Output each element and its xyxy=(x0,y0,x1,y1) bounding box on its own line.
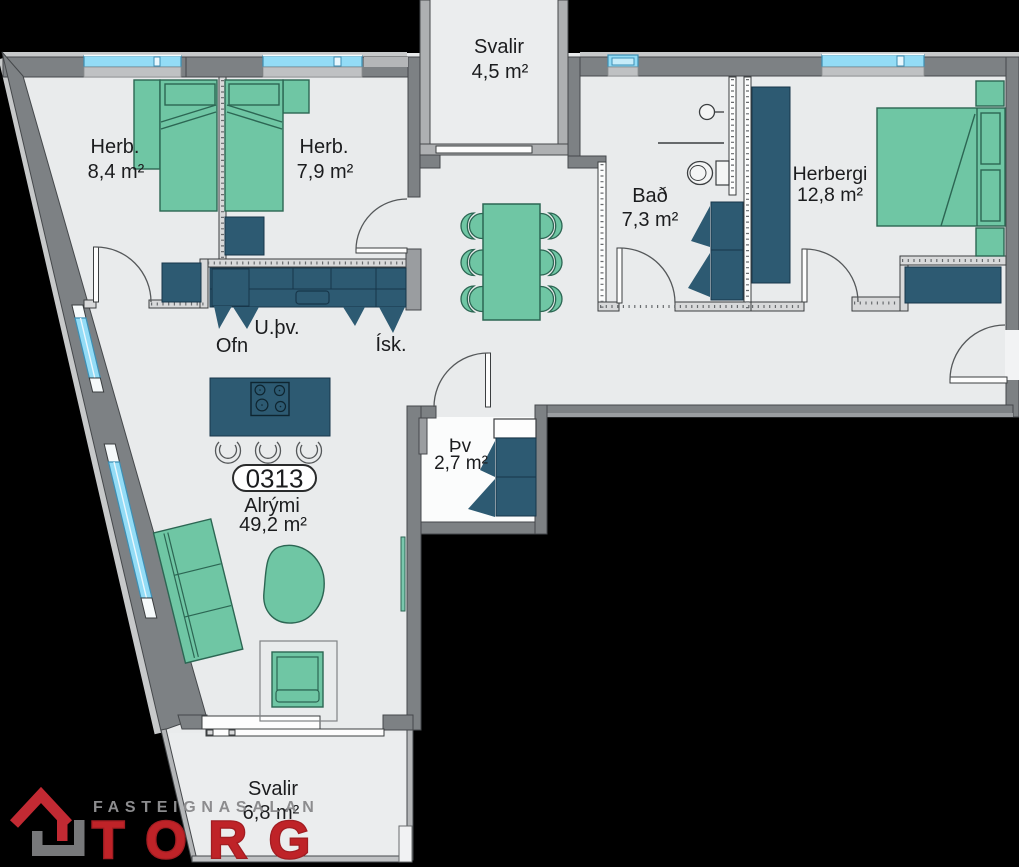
svg-text:Herb.: Herb. xyxy=(300,136,349,158)
svg-text:49,2 m²: 49,2 m² xyxy=(239,514,307,536)
svg-text:TORG: TORG xyxy=(92,811,332,867)
svg-text:Ofn: Ofn xyxy=(216,335,248,357)
svg-text:8,4 m²: 8,4 m² xyxy=(88,161,145,183)
svg-text:2,7 m²: 2,7 m² xyxy=(434,453,488,474)
svg-text:Ísk.: Ísk. xyxy=(375,333,406,356)
svg-text:7,3 m²: 7,3 m² xyxy=(622,209,679,231)
svg-text:Svalir: Svalir xyxy=(248,778,298,800)
svg-text:0313: 0313 xyxy=(246,464,304,494)
svg-text:Svalir: Svalir xyxy=(474,36,524,58)
svg-text:4,5 m²: 4,5 m² xyxy=(472,61,529,83)
svg-text:Herb.: Herb. xyxy=(91,136,140,158)
svg-text:12,8 m²: 12,8 m² xyxy=(797,184,864,206)
svg-text:Herbergi: Herbergi xyxy=(793,163,868,185)
svg-text:Bað: Bað xyxy=(632,185,668,207)
svg-text:U.þv.: U.þv. xyxy=(254,317,299,339)
svg-text:7,9 m²: 7,9 m² xyxy=(297,161,354,183)
